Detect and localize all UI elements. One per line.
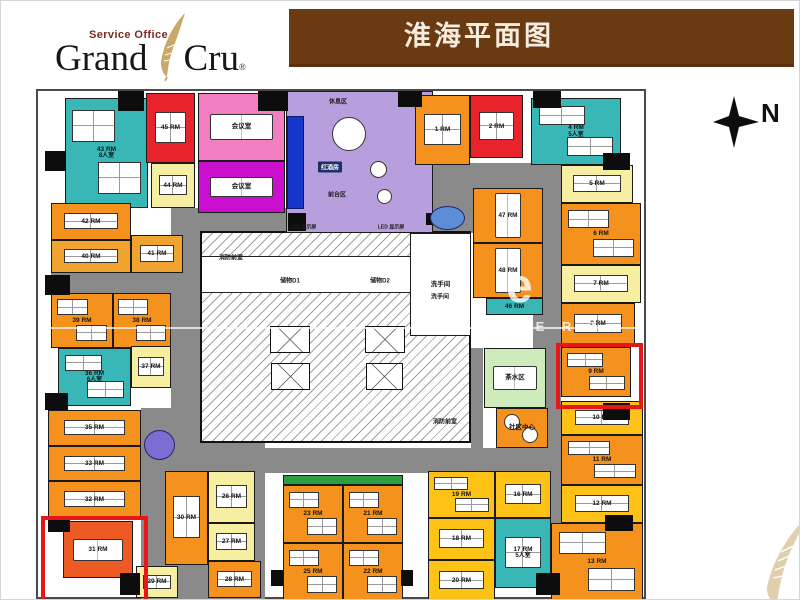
area-label: 消防前室 <box>433 417 457 426</box>
area-label: 储物D2 <box>370 276 390 285</box>
meeting-room-2: 会议室 <box>198 161 285 213</box>
room-36: 36 RM6人室 <box>58 348 131 406</box>
desk-group <box>159 175 188 195</box>
structural-column <box>271 570 283 586</box>
room-42: 42 RM <box>51 203 131 240</box>
watermark-glyph: e <box>506 259 533 314</box>
desk-group <box>575 495 629 512</box>
room-39: 39 RM <box>51 293 113 348</box>
room-47: 47 RM <box>473 188 543 243</box>
desk-group <box>349 550 379 567</box>
room-11: 11 RM <box>561 435 643 485</box>
desk-group <box>367 576 397 593</box>
community-center: 社区中心 <box>496 408 548 448</box>
room-32: 32 RM <box>48 481 141 518</box>
logo-wordmark: GrandCru® <box>55 37 246 80</box>
structural-column <box>258 91 288 111</box>
desk-group <box>64 491 126 507</box>
desk-group <box>64 249 117 263</box>
room-22: 22 RM <box>343 543 403 600</box>
structural-column <box>533 91 561 108</box>
round-table <box>370 161 387 178</box>
room-13: 13 RM <box>551 523 643 600</box>
structural-column <box>605 515 633 531</box>
room-26: 26 RM <box>208 471 255 523</box>
desk-group <box>138 357 164 375</box>
slide: Service Office GrandCru® 淮海平面图 N e N E X… <box>0 0 800 600</box>
room-35: 35 RM <box>48 410 141 446</box>
desk-group <box>307 576 337 593</box>
desk-group <box>217 571 252 587</box>
conference-table <box>210 177 273 197</box>
title-bar: 淮海平面图 <box>289 9 794 67</box>
tea-area: 茶水区 <box>484 348 546 408</box>
desk-group <box>568 210 609 228</box>
structural-column <box>45 151 66 171</box>
room-23: 23 RM <box>283 485 343 543</box>
desk-group <box>140 245 174 262</box>
room-2: 2 RM <box>470 95 523 158</box>
round-table <box>332 117 366 151</box>
desk-group <box>216 533 247 550</box>
area-label: 红酒房 <box>318 162 342 173</box>
structural-column <box>398 91 422 107</box>
room-37: 37 RM <box>131 346 171 388</box>
desk-group <box>349 492 379 509</box>
room-43: 43 RM8人室 <box>65 98 148 208</box>
area-label: 储物D1 <box>280 276 300 285</box>
structural-column <box>118 91 144 111</box>
area-label: 休息区 <box>329 97 347 106</box>
room-27: 27 RM <box>208 523 255 561</box>
area-label: 消防前室 <box>219 253 243 262</box>
highlight-box <box>556 343 643 409</box>
desk-group <box>87 381 124 398</box>
desk-group <box>573 175 621 192</box>
desk-group <box>439 571 483 589</box>
compass: N <box>713 96 793 156</box>
area-label: LED 显示屏 <box>378 224 404 231</box>
logo-word-grand: Grand <box>55 38 147 79</box>
desk-group <box>64 456 126 471</box>
north-arrow-icon <box>713 96 759 148</box>
elevator-shaft <box>270 326 310 353</box>
desk-group <box>593 239 634 257</box>
page-title: 淮海平面图 <box>289 9 794 64</box>
elevator-shaft <box>366 363 403 390</box>
desk-group <box>505 484 542 505</box>
structural-column <box>401 570 413 586</box>
room-25: 25 RM <box>283 543 343 600</box>
desk-group <box>98 162 140 194</box>
desk-group <box>155 112 187 143</box>
desk-group <box>118 299 147 315</box>
planter-strip <box>283 475 403 485</box>
desk-group <box>434 477 468 491</box>
desk-group <box>594 464 636 478</box>
room-21: 21 RM <box>343 485 403 543</box>
area-label: 前台区 <box>328 190 346 199</box>
desk-group <box>574 275 627 292</box>
room-44: 44 RM <box>151 163 195 208</box>
desk-group <box>216 485 247 508</box>
room-16: 16 RM <box>495 471 551 518</box>
desk-group <box>539 106 585 126</box>
desk-group <box>479 112 514 140</box>
desk-group <box>289 550 319 567</box>
elevator-shaft <box>271 363 310 390</box>
corridor <box>473 163 561 188</box>
room-7: 7 RM <box>561 265 641 303</box>
room-label: 社区中心 <box>497 409 547 447</box>
desk-group <box>64 213 117 229</box>
watermark-text: N E X P E R T <box>430 319 604 334</box>
desk-group <box>57 299 88 315</box>
room-30: 30 RM <box>165 471 208 565</box>
room-33: 33 RM <box>48 446 141 481</box>
desk-group <box>289 492 319 509</box>
room-18: 18 RM <box>428 518 495 560</box>
room-1: 1 RM <box>415 95 470 165</box>
structural-column <box>45 393 68 410</box>
desk-group <box>173 496 201 538</box>
structural-column <box>536 573 560 595</box>
highlight-box <box>41 516 148 600</box>
feather-icon <box>155 11 189 81</box>
structural-column <box>603 153 630 170</box>
room-38: 38 RM <box>113 293 171 348</box>
area-label: 洗手间 <box>431 292 449 301</box>
decor-sofa <box>430 206 465 230</box>
room-19: 19 RM <box>428 471 495 518</box>
desk-group <box>559 532 606 555</box>
desk-group <box>568 441 610 455</box>
desk-group <box>439 529 483 547</box>
logo-word-cru: Cru <box>183 38 239 79</box>
desk-group <box>65 355 102 372</box>
room-6: 6 RM <box>561 203 641 265</box>
round-table <box>377 189 392 204</box>
desk-group <box>307 518 337 535</box>
floor-plan: e N E X P E R T 43 RM8人室45 RM44 RM会议室会议室… <box>36 89 646 599</box>
room-28: 28 RM <box>208 561 261 598</box>
conference-table <box>495 193 521 239</box>
elevator-shaft <box>365 326 405 353</box>
conference-table <box>210 114 273 140</box>
desk-group <box>588 568 635 591</box>
feather-watermark-icon <box>753 516 800 600</box>
conference-table <box>493 366 537 389</box>
desk-group <box>455 498 489 512</box>
decor-sofa <box>144 430 175 460</box>
presentation-screen <box>287 116 304 209</box>
room-40: 40 RM <box>51 240 131 273</box>
registered-mark: ® <box>239 62 246 72</box>
structural-column <box>45 275 70 295</box>
desk-group <box>367 518 397 535</box>
north-label: N <box>761 98 780 129</box>
room-41: 41 RM <box>131 235 183 273</box>
room-45: 45 RM <box>146 93 195 163</box>
area-label: LED 显示屏 <box>290 224 316 231</box>
desk-group <box>505 537 542 568</box>
grand-cru-logo: Service Office GrandCru® <box>43 15 273 75</box>
room-20: 20 RM <box>428 560 495 600</box>
desk-group <box>424 114 460 145</box>
corridor <box>471 348 483 448</box>
round-table <box>504 414 520 430</box>
desk-group <box>64 420 126 436</box>
room-5: 5 RM <box>561 165 633 203</box>
desk-group <box>72 110 114 142</box>
round-table <box>522 427 538 443</box>
reception-lounge <box>286 91 433 233</box>
